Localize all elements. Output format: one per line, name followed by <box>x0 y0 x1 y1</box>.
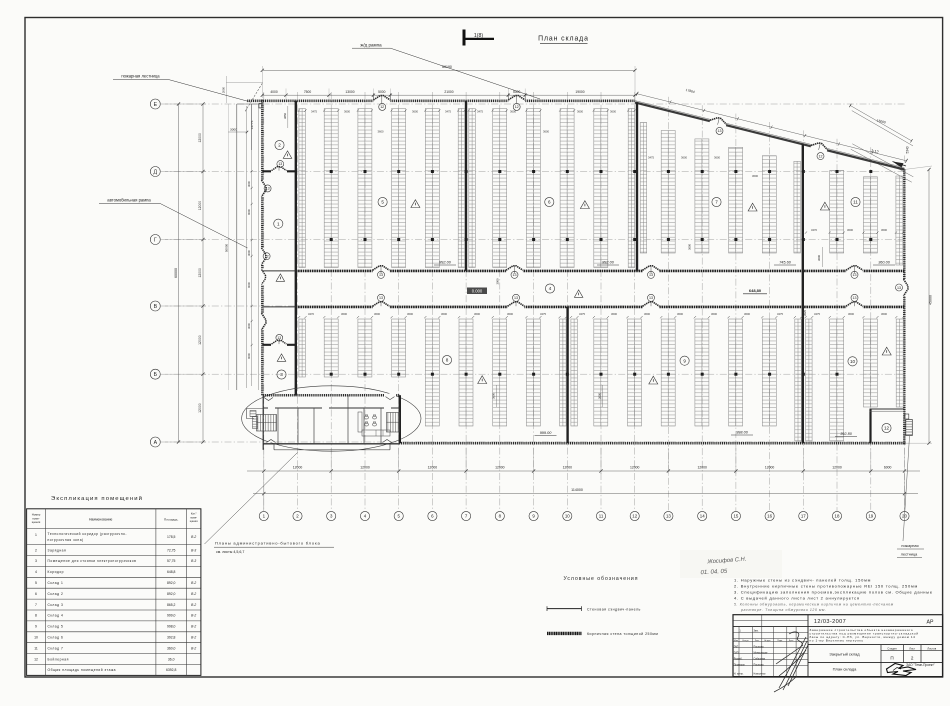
svg-text:В-3: В-3 <box>191 559 196 563</box>
svg-text:3000: 3000 <box>496 278 500 284</box>
svg-text:5: 5 <box>381 200 384 205</box>
svg-text:пожарная: пожарная <box>901 544 918 548</box>
svg-text:А: А <box>154 440 158 446</box>
svg-text:5340: 5340 <box>906 146 910 153</box>
svg-text:3475: 3475 <box>311 110 317 114</box>
svg-text:ж/д рампа: ж/д рампа <box>360 42 382 47</box>
svg-text:12000: 12000 <box>198 403 202 413</box>
svg-text:Склад 1: Склад 1 <box>48 581 64 585</box>
svg-text:8: 8 <box>35 614 37 618</box>
svg-text:щения: щения <box>190 520 198 523</box>
svg-text:13: 13 <box>649 273 653 277</box>
svg-text:3000: 3000 <box>230 128 237 132</box>
svg-text:Кол.уч: Кол.уч <box>742 640 748 642</box>
svg-text:Новоселов: Новоселов <box>753 673 766 676</box>
svg-text:11: 11 <box>853 200 858 205</box>
svg-text:12000: 12000 <box>630 466 640 470</box>
svg-text:13: 13 <box>379 273 383 277</box>
svg-text:12000: 12000 <box>563 466 573 470</box>
svg-text:Планы административно-бытового: Планы административно-бытового блока <box>215 541 321 546</box>
svg-text:3600: 3600 <box>881 312 887 316</box>
svg-text:9: 9 <box>683 358 686 363</box>
svg-text:3600: 3600 <box>677 312 683 316</box>
svg-text:3475: 3475 <box>777 312 783 316</box>
svg-text:Менжинская: Менжинская <box>753 652 768 655</box>
svg-text:10: 10 <box>850 359 856 364</box>
svg-text:12000: 12000 <box>198 335 202 345</box>
svg-text:3600: 3600 <box>412 110 418 114</box>
svg-text:Пашкова: Пашкова <box>753 646 764 649</box>
svg-text:3600: 3600 <box>344 110 350 114</box>
svg-text:9000: 9000 <box>247 209 251 215</box>
svg-text:12000: 12000 <box>293 466 303 470</box>
svg-text:892.00: 892.00 <box>439 261 452 265</box>
svg-text:999,0: 999,0 <box>167 614 176 618</box>
svg-text:13: 13 <box>278 162 282 166</box>
svg-text:60000: 60000 <box>174 268 178 278</box>
svg-text:3000: 3000 <box>247 323 251 329</box>
svg-text:3600: 3600 <box>881 228 887 232</box>
svg-text:1: 1 <box>277 221 280 226</box>
svg-text:5: 5 <box>35 581 37 585</box>
svg-text:865,2: 865,2 <box>167 603 176 607</box>
svg-text:18: 18 <box>835 514 840 519</box>
svg-text:7500: 7500 <box>304 90 312 94</box>
svg-text:3600: 3600 <box>507 312 513 316</box>
svg-text:Г: Г <box>154 237 157 243</box>
svg-text:В-2: В-2 <box>191 603 196 607</box>
svg-text:892,0: 892,0 <box>167 581 176 585</box>
svg-text:7: 7 <box>715 200 718 205</box>
svg-text:114000: 114000 <box>571 488 583 492</box>
svg-text:13: 13 <box>277 336 281 340</box>
svg-text:3475: 3475 <box>814 312 820 316</box>
svg-text:13000: 13000 <box>345 90 354 94</box>
svg-text:3600: 3600 <box>543 129 549 133</box>
svg-text:Подп.: Подп. <box>777 640 783 642</box>
svg-text:12000: 12000 <box>765 466 775 470</box>
svg-text:Кирпичная стена толщиной 250мм: Кирпичная стена толщиной 250мм <box>587 632 658 636</box>
svg-text:В-3: В-3 <box>191 548 196 552</box>
svg-text:10: 10 <box>565 514 570 519</box>
svg-text:В-2: В-2 <box>191 581 196 585</box>
svg-text:3600: 3600 <box>378 129 384 133</box>
svg-text:Стадия: Стадия <box>887 646 897 650</box>
svg-text:3470: 3470 <box>308 312 314 316</box>
svg-text:6000: 6000 <box>884 466 892 470</box>
svg-text:План склада: План склада <box>538 35 589 42</box>
svg-text:12/03-2007: 12/03-2007 <box>814 619 846 625</box>
svg-text:6: 6 <box>35 592 37 596</box>
svg-text:Н. контр.: Н. контр. <box>734 673 744 676</box>
svg-text:5. Колонны обмуровать, керами: 5. Колонны обмуровать, керамическим кирп… <box>734 602 894 606</box>
svg-text:4000: 4000 <box>270 90 278 94</box>
svg-text:Закрытый склад: Закрытый склад <box>829 652 860 657</box>
svg-text:3600: 3600 <box>441 312 447 316</box>
svg-text:Склад 4: Склад 4 <box>48 614 64 618</box>
svg-text:В-2: В-2 <box>191 636 196 640</box>
svg-text:13: 13 <box>853 296 857 300</box>
svg-text:12: 12 <box>265 255 269 259</box>
svg-text:пожарная лестница: пожарная лестница <box>121 74 160 79</box>
svg-text:892.00: 892.00 <box>602 261 615 265</box>
svg-text:3600: 3600 <box>644 312 650 316</box>
svg-text:Склад 3: Склад 3 <box>48 603 64 607</box>
svg-text:648,80: 648,80 <box>749 288 762 293</box>
svg-text:Зарядная: Зарядная <box>48 548 67 552</box>
svg-text:998.00: 998.00 <box>736 431 749 435</box>
svg-text:4: 4 <box>549 286 552 291</box>
svg-text:13: 13 <box>513 273 517 277</box>
svg-text:12: 12 <box>34 657 38 661</box>
svg-text:14: 14 <box>700 514 705 519</box>
svg-text:12: 12 <box>884 426 890 431</box>
svg-text:57,75: 57,75 <box>167 559 176 563</box>
svg-text:растворе. Толщина обмуровки 12: растворе. Толщина обмуровки 120 мм. <box>740 608 827 612</box>
svg-text:3600: 3600 <box>752 174 758 178</box>
svg-text:3. Спецификацию заполнения пр: 3. Спецификацию заполнения проемов,экспл… <box>734 590 933 595</box>
svg-text:12: 12 <box>515 105 519 109</box>
svg-text:3475: 3475 <box>540 312 546 316</box>
svg-text:Склад 6: Склад 6 <box>48 636 64 640</box>
svg-text:0.000: 0.000 <box>472 289 483 294</box>
svg-text:Кат.*: Кат.* <box>191 512 197 516</box>
svg-text:16: 16 <box>767 514 772 519</box>
svg-text:Изм: Изм <box>734 640 738 642</box>
svg-text:3600: 3600 <box>714 156 720 160</box>
svg-text:392,8: 392,8 <box>167 636 176 640</box>
svg-text:Листов: Листов <box>927 646 936 650</box>
svg-text:3: 3 <box>35 559 37 563</box>
svg-text:360,0: 360,0 <box>167 646 176 650</box>
svg-text:Склад 2: Склад 2 <box>48 592 64 596</box>
svg-text:17: 17 <box>801 514 806 519</box>
svg-text:13: 13 <box>666 514 671 519</box>
svg-text:3850: 3850 <box>283 113 287 119</box>
svg-text:3475: 3475 <box>477 110 483 114</box>
svg-text:Проверил: Проверил <box>734 664 746 667</box>
svg-text:поме-: поме- <box>190 516 197 519</box>
svg-text:щения: щения <box>32 520 41 524</box>
svg-text:П: П <box>890 656 893 661</box>
svg-text:3470: 3470 <box>811 228 817 232</box>
svg-text:13: 13 <box>266 187 270 191</box>
svg-text:3000: 3000 <box>247 250 251 256</box>
svg-text:3600: 3600 <box>847 228 853 232</box>
svg-text:36,0: 36,0 <box>168 657 175 661</box>
svg-text:11: 11 <box>599 514 604 519</box>
svg-text:Б: Б <box>154 372 158 378</box>
svg-text:178,5: 178,5 <box>167 535 176 539</box>
svg-text:7: 7 <box>35 603 37 607</box>
svg-text:13: 13 <box>853 273 857 277</box>
svg-text:3600: 3600 <box>610 110 616 114</box>
svg-text:12000: 12000 <box>198 133 202 143</box>
svg-text:Коридор: Коридор <box>48 570 65 574</box>
svg-text:Условные обозначения: Условные обозначения <box>563 576 638 582</box>
svg-text:Бойлерная: Бойлерная <box>48 657 69 661</box>
svg-text:Наименование: Наименование <box>89 518 113 522</box>
svg-text:12: 12 <box>380 105 384 109</box>
svg-text:см. листы 4,5,6,7: см. листы 4,5,6,7 <box>216 550 244 554</box>
svg-text:В-2: В-2 <box>191 592 196 596</box>
svg-text:4. С выдачей данного листа ли: 4. С выдачей данного листа лист 2 аннули… <box>734 596 860 601</box>
svg-text:Д: Д <box>154 169 158 175</box>
svg-text:1. Наружные стены из сэндвич-: 1. Наружные стены из сэндвич- панелей то… <box>734 577 871 582</box>
svg-text:№ док.: № док. <box>764 639 771 642</box>
svg-text:Склад 7: Склад 7 <box>48 646 64 650</box>
svg-text:3000: 3000 <box>492 393 496 399</box>
svg-text:13: 13 <box>718 129 722 133</box>
svg-text:В-2: В-2 <box>191 625 196 629</box>
svg-text:Зам.: Зам. <box>753 630 758 633</box>
svg-text:12000: 12000 <box>360 466 370 470</box>
svg-text:13: 13 <box>649 296 653 300</box>
svg-text:3600: 3600 <box>474 312 480 316</box>
svg-text:3525: 3525 <box>803 310 807 316</box>
svg-text:19: 19 <box>868 514 873 519</box>
svg-text:45000: 45000 <box>929 295 933 305</box>
svg-text:648,8: 648,8 <box>167 570 176 574</box>
svg-text:Стеновая сэндвич-панель: Стеновая сэндвич-панель <box>587 607 641 611</box>
svg-text:19000: 19000 <box>575 90 584 94</box>
svg-text:2000: 2000 <box>222 86 226 93</box>
svg-text:ГИП: ГИП <box>734 652 739 655</box>
svg-text:3600: 3600 <box>681 156 687 160</box>
svg-text:ЗАО "Темп-Проект": ЗАО "Темп-Проект" <box>906 663 935 667</box>
svg-text:3600: 3600 <box>577 110 583 114</box>
svg-text:3475: 3475 <box>579 312 585 316</box>
svg-text:В-2: В-2 <box>191 535 196 539</box>
svg-text:3600: 3600 <box>848 312 854 316</box>
svg-text:3000: 3000 <box>598 393 602 399</box>
svg-text:998,0: 998,0 <box>167 625 176 629</box>
svg-text:72,75: 72,75 <box>167 548 176 552</box>
svg-text:по 1-му Верхнему переулку: по 1-му Верхнему переулку <box>810 639 864 643</box>
svg-text:Лист: Лист <box>755 640 760 642</box>
svg-text:5000: 5000 <box>378 90 386 94</box>
svg-text:2. Внутренние кирпичные стены: 2. Внутренние кирпичные стены противопож… <box>734 584 918 589</box>
svg-text:Общая площадь помещений этажа: Общая площадь помещений этажа <box>48 668 117 672</box>
svg-text:3600: 3600 <box>407 312 413 316</box>
svg-text:392.80: 392.80 <box>840 432 853 436</box>
svg-text:9: 9 <box>35 625 37 629</box>
svg-text:15: 15 <box>733 514 738 519</box>
svg-text:892,0: 892,0 <box>167 592 176 596</box>
svg-text:2: 2 <box>35 548 37 552</box>
svg-text:3475: 3475 <box>648 156 654 160</box>
svg-text:2: 2 <box>278 143 281 148</box>
svg-text:9000: 9000 <box>247 282 251 288</box>
svg-text:8: 8 <box>446 358 449 363</box>
svg-text:3600: 3600 <box>374 312 380 316</box>
svg-text:Разраб.: Разраб. <box>734 658 743 661</box>
svg-text:Е: Е <box>154 102 158 108</box>
svg-text:6392,8: 6392,8 <box>166 668 176 672</box>
svg-text:11: 11 <box>34 646 38 650</box>
svg-text:1(8): 1(8) <box>474 33 483 39</box>
svg-text:3000: 3000 <box>247 181 251 187</box>
svg-text:4: 4 <box>35 570 37 574</box>
svg-text:автомобильная рампа: автомобильная рампа <box>107 198 151 203</box>
svg-text:3475: 3475 <box>445 110 451 114</box>
svg-text:3000: 3000 <box>817 255 821 261</box>
svg-text:999.00: 999.00 <box>540 431 553 435</box>
svg-text:В-2: В-2 <box>191 614 196 618</box>
svg-text:10: 10 <box>34 636 38 640</box>
svg-text:Площадь,: Площадь, <box>164 518 178 522</box>
svg-text:лестница: лестница <box>901 553 918 557</box>
svg-text:Лист: Лист <box>909 646 916 650</box>
svg-text:погрузочная зона): погрузочная зона) <box>48 538 84 542</box>
svg-text:2: 2 <box>911 656 914 661</box>
svg-text:745.60: 745.60 <box>779 261 792 265</box>
svg-text:360.00: 360.00 <box>878 261 891 265</box>
svg-text:План склада: План склада <box>833 667 857 672</box>
svg-text:3600: 3600 <box>510 110 516 114</box>
svg-text:3600: 3600 <box>744 312 750 316</box>
svg-text:Помещение для стоянки электроп: Помещение для стоянки электропогрузчиков <box>48 559 137 563</box>
svg-text:АР: АР <box>927 620 934 626</box>
svg-text:1: 1 <box>35 533 37 537</box>
svg-text:12000: 12000 <box>428 466 438 470</box>
svg-text:12: 12 <box>819 154 823 158</box>
svg-text:В: В <box>154 304 158 310</box>
svg-text:Экспликация помещений: Экспликация помещений <box>51 495 143 502</box>
svg-text:6: 6 <box>548 200 551 205</box>
svg-text:3600: 3600 <box>711 312 717 316</box>
svg-text:12: 12 <box>632 514 637 519</box>
svg-text:3600: 3600 <box>341 312 347 316</box>
svg-text:Пашкова: Пашкова <box>753 664 764 667</box>
svg-text:ГАП: ГАП <box>734 646 739 649</box>
svg-text:12000: 12000 <box>495 466 505 470</box>
svg-text:Сабашева: Сабашева <box>753 658 765 661</box>
svg-text:В-2: В-2 <box>191 646 196 650</box>
svg-text:12000: 12000 <box>198 201 202 211</box>
svg-text:12000: 12000 <box>832 466 842 470</box>
svg-text:50000: 50000 <box>224 243 228 252</box>
svg-text:3: 3 <box>280 372 283 377</box>
svg-text:13: 13 <box>897 286 901 290</box>
svg-text:12000: 12000 <box>697 466 707 470</box>
svg-text:Склад 5: Склад 5 <box>48 625 64 629</box>
svg-text:13: 13 <box>379 296 383 300</box>
svg-text:3000: 3000 <box>688 244 692 250</box>
svg-text:13: 13 <box>514 296 518 300</box>
svg-text:21000: 21000 <box>444 90 453 94</box>
svg-text:12000: 12000 <box>198 268 202 278</box>
svg-text:3600: 3600 <box>611 312 617 316</box>
svg-text:Технологический коридор (разгр: Технологический коридор (разгрузочно- <box>48 532 128 536</box>
svg-text:9000: 9000 <box>247 353 251 359</box>
